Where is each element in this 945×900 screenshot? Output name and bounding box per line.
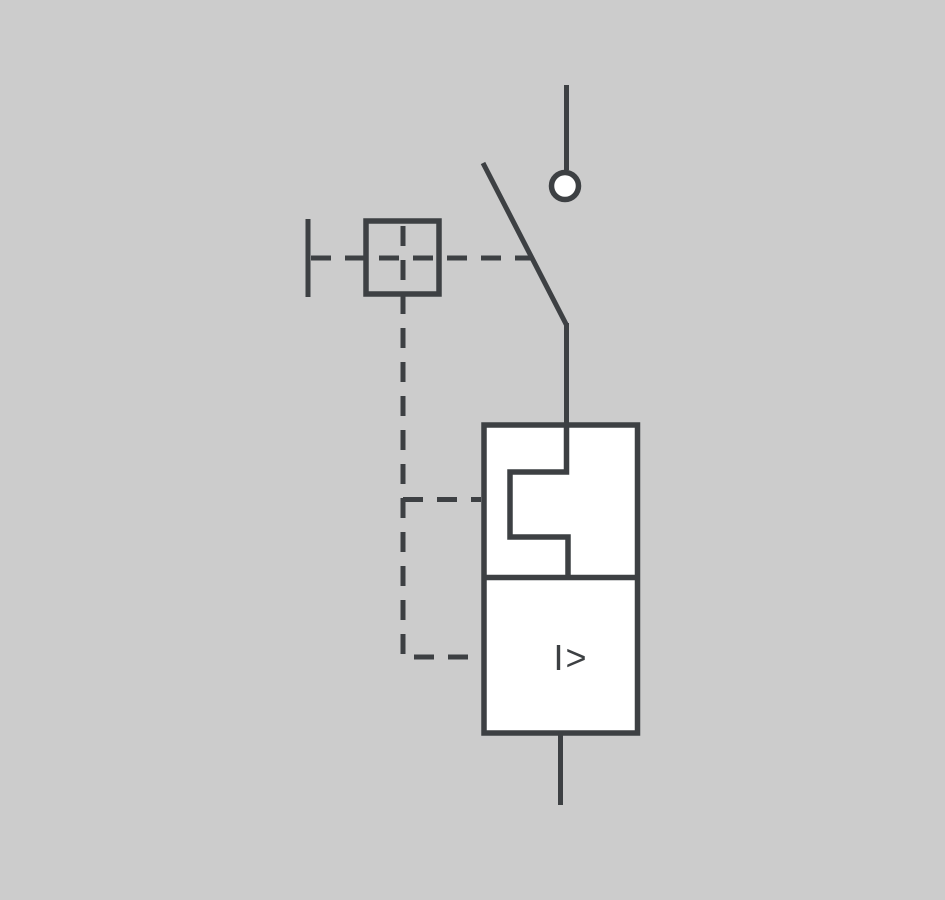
circuit-breaker-schematic: I>	[0, 0, 945, 900]
overcurrent-release-label: I>	[553, 637, 588, 678]
schematic-canvas: I>	[0, 0, 945, 900]
terminal-circle	[552, 173, 579, 200]
linkage-dashed-vertical	[403, 226, 481, 657]
